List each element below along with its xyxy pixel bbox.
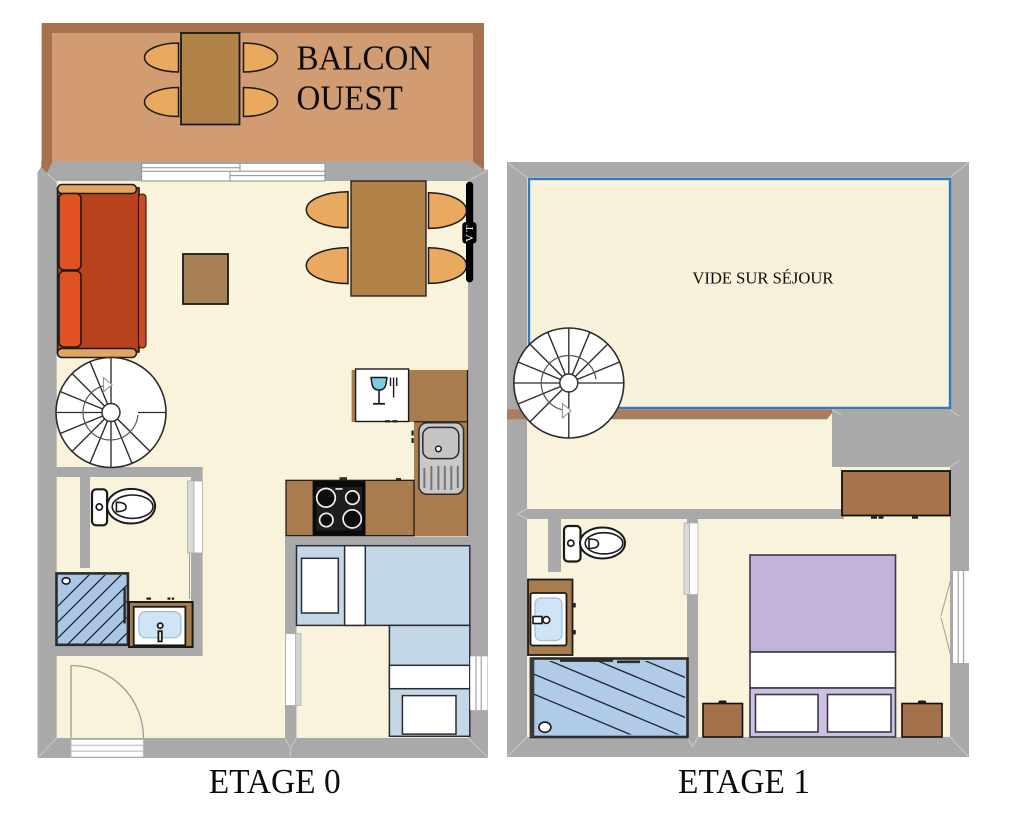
svg-text:VIDE SUR SÉJOUR: VIDE SUR SÉJOUR <box>692 269 834 288</box>
svg-text:ETAGE 1: ETAGE 1 <box>678 763 810 801</box>
svg-text:OUEST: OUEST <box>297 80 404 118</box>
svg-text:ETAGE 0: ETAGE 0 <box>209 763 341 801</box>
svg-text:T: T <box>465 225 476 232</box>
svg-text:BALCON: BALCON <box>297 40 433 78</box>
svg-text:V: V <box>465 234 476 242</box>
